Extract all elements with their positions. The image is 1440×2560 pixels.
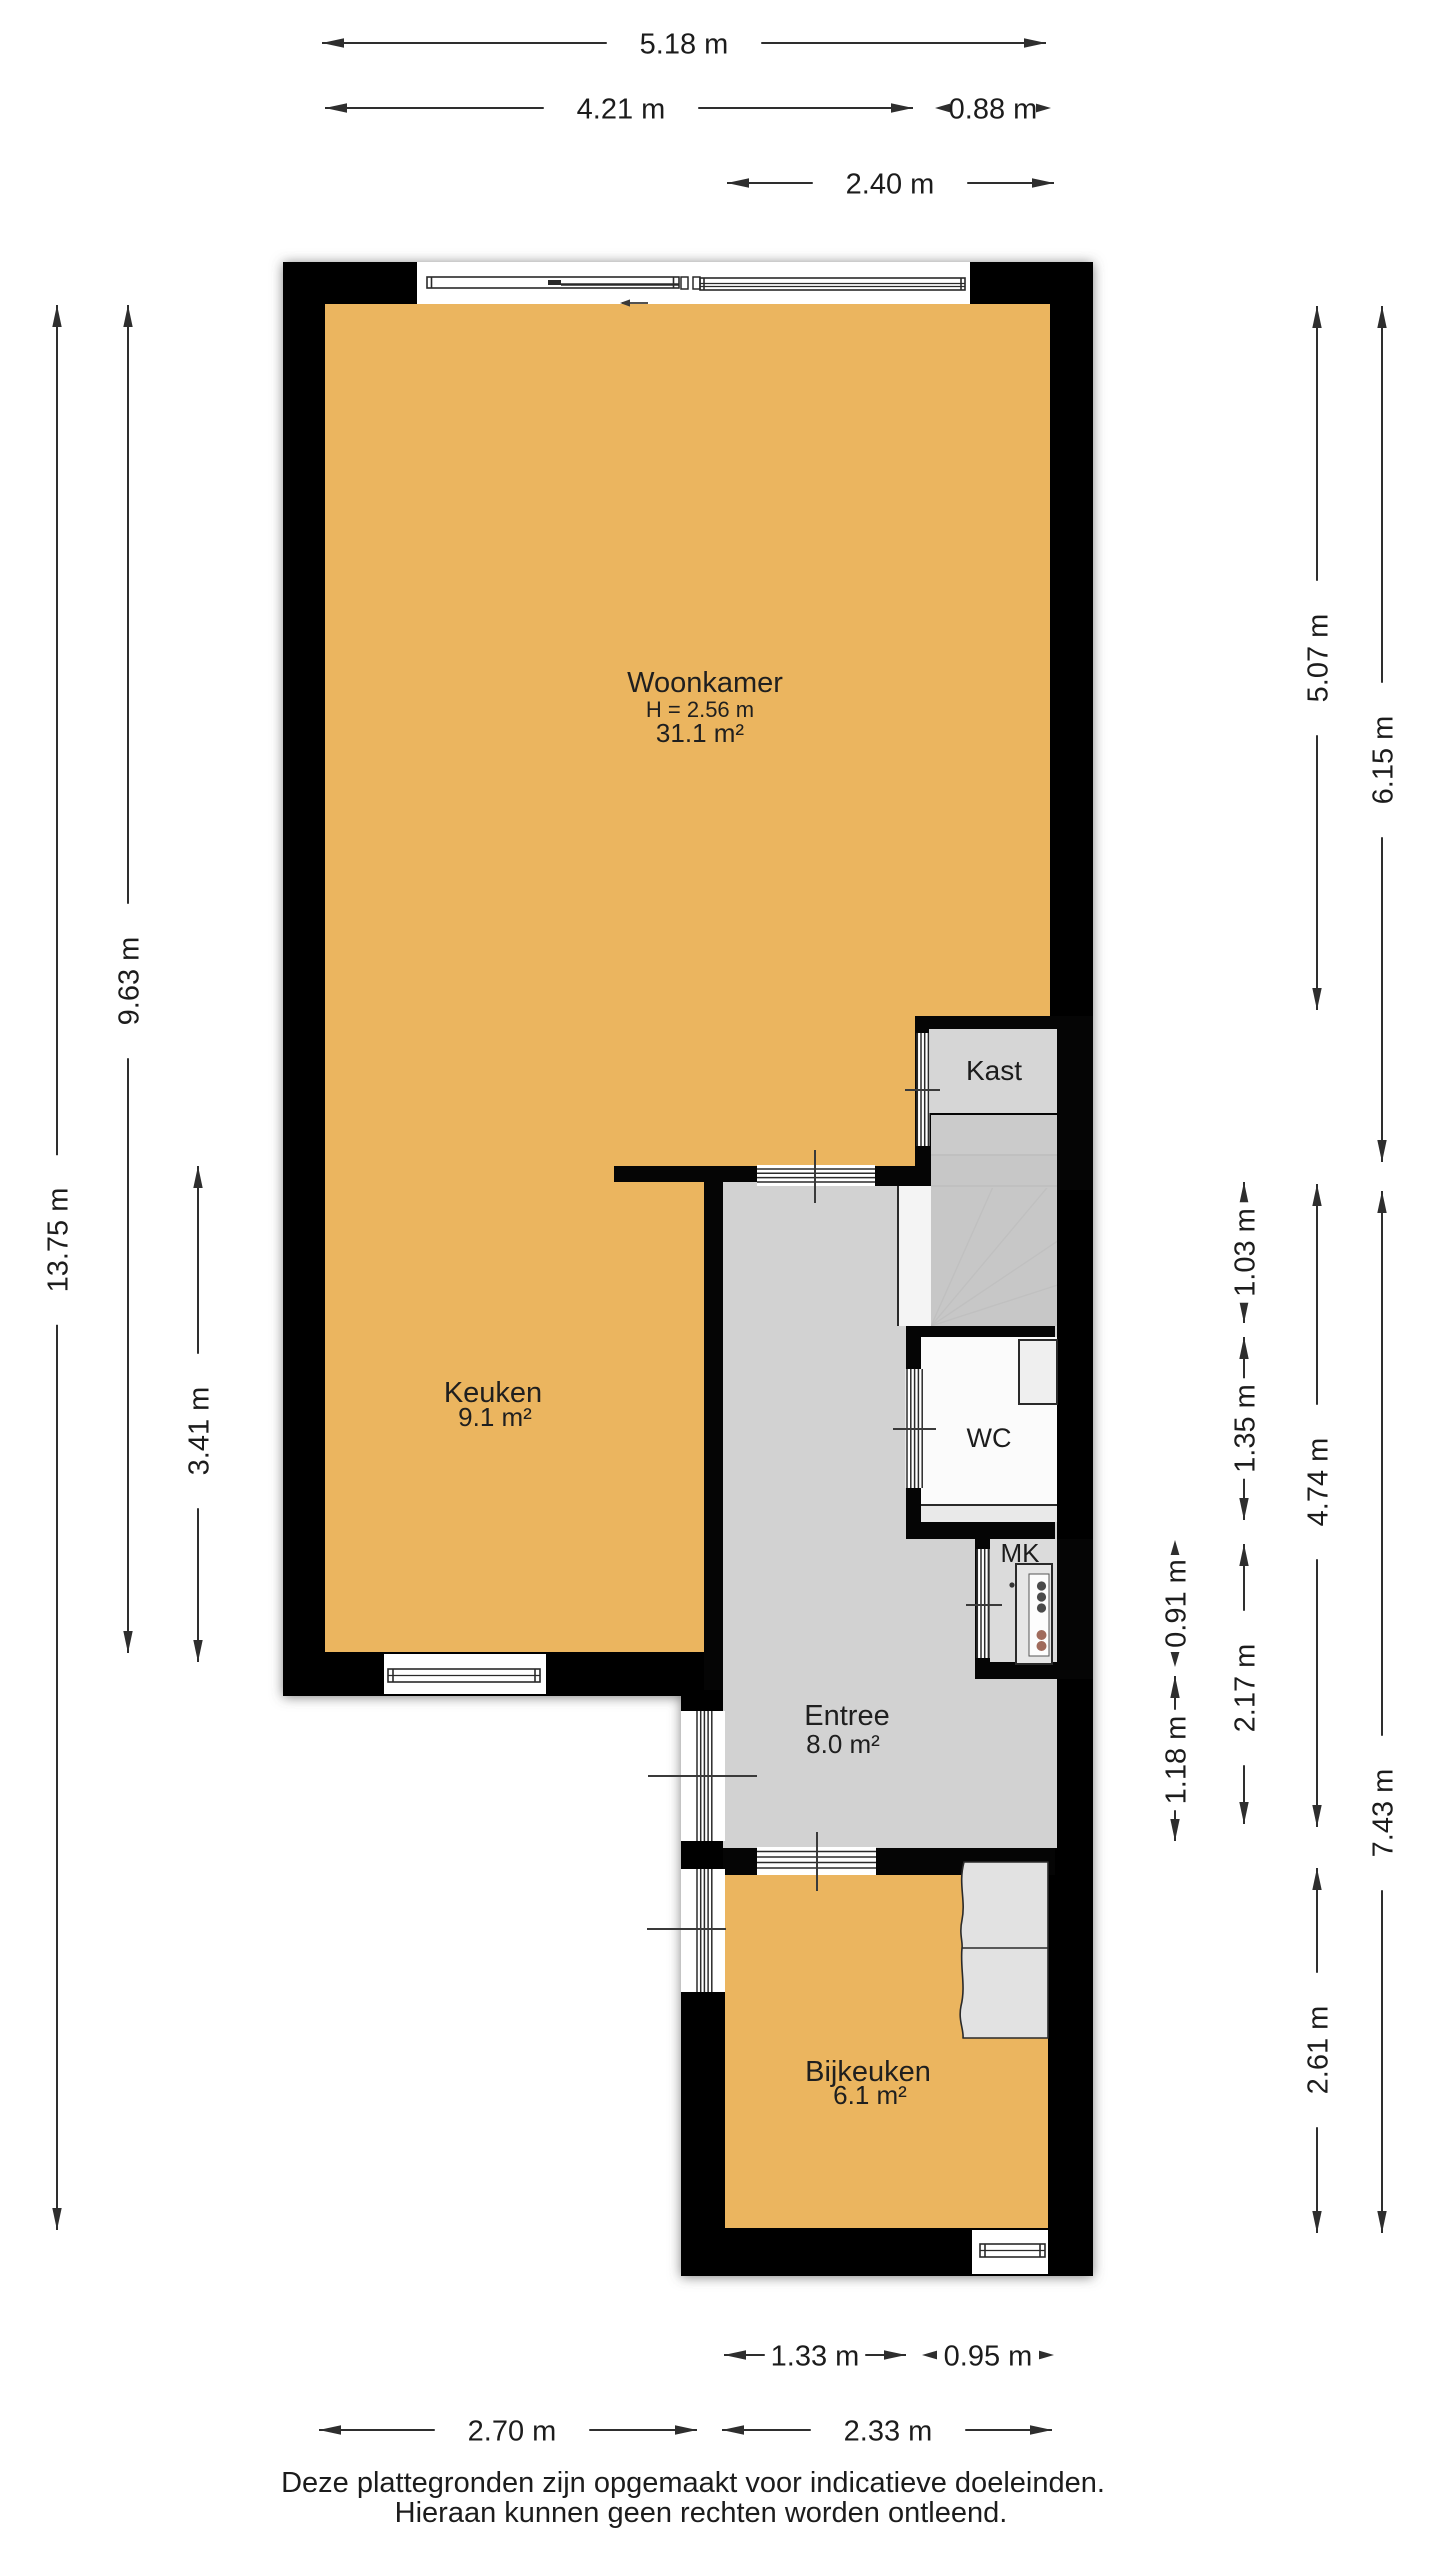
svg-text:2.61 m: 2.61 m <box>1302 2006 1334 2095</box>
svg-text:Deze plattegronden zijn opgema: Deze plattegronden zijn opgemaakt voor i… <box>281 2467 1105 2499</box>
svg-text:WC: WC <box>967 1423 1012 1453</box>
svg-text:5.18 m: 5.18 m <box>640 28 729 60</box>
svg-text:9.1 m²: 9.1 m² <box>458 1402 532 1432</box>
svg-text:Kast: Kast <box>966 1055 1022 1086</box>
svg-text:6.15 m: 6.15 m <box>1367 716 1399 805</box>
svg-text:2.33 m: 2.33 m <box>844 2415 933 2447</box>
svg-text:Woonkamer: Woonkamer <box>627 667 783 699</box>
svg-text:1.18 m: 1.18 m <box>1160 1716 1192 1805</box>
svg-text:2.40 m: 2.40 m <box>846 168 935 200</box>
svg-text:31.1 m²: 31.1 m² <box>656 718 744 748</box>
svg-text:0.88 m: 0.88 m <box>949 93 1038 125</box>
svg-text:9.63 m: 9.63 m <box>113 937 145 1026</box>
svg-text:0.95 m: 0.95 m <box>944 2340 1033 2372</box>
svg-text:8.0 m²: 8.0 m² <box>806 1729 880 1759</box>
svg-text:Entree: Entree <box>804 1700 889 1732</box>
svg-text:3.41 m: 3.41 m <box>183 1387 215 1476</box>
svg-text:1.33 m: 1.33 m <box>771 2340 860 2372</box>
svg-text:6.1 m²: 6.1 m² <box>833 2080 907 2110</box>
svg-text:7.43 m: 7.43 m <box>1367 1769 1399 1858</box>
svg-text:1.03 m: 1.03 m <box>1229 1208 1261 1297</box>
svg-text:0.91 m: 0.91 m <box>1160 1559 1192 1648</box>
svg-text:2.70 m: 2.70 m <box>468 2415 557 2447</box>
svg-text:13.75 m: 13.75 m <box>42 1188 74 1293</box>
svg-text:4.74 m: 4.74 m <box>1302 1438 1334 1527</box>
svg-text:1.35 m: 1.35 m <box>1229 1384 1261 1473</box>
svg-text:4.21 m: 4.21 m <box>577 93 666 125</box>
svg-text:Hieraan kunnen geen rechten wo: Hieraan kunnen geen rechten worden ontle… <box>395 2497 1008 2529</box>
svg-text:5.07 m: 5.07 m <box>1302 614 1334 703</box>
svg-text:2.17 m: 2.17 m <box>1229 1644 1261 1733</box>
